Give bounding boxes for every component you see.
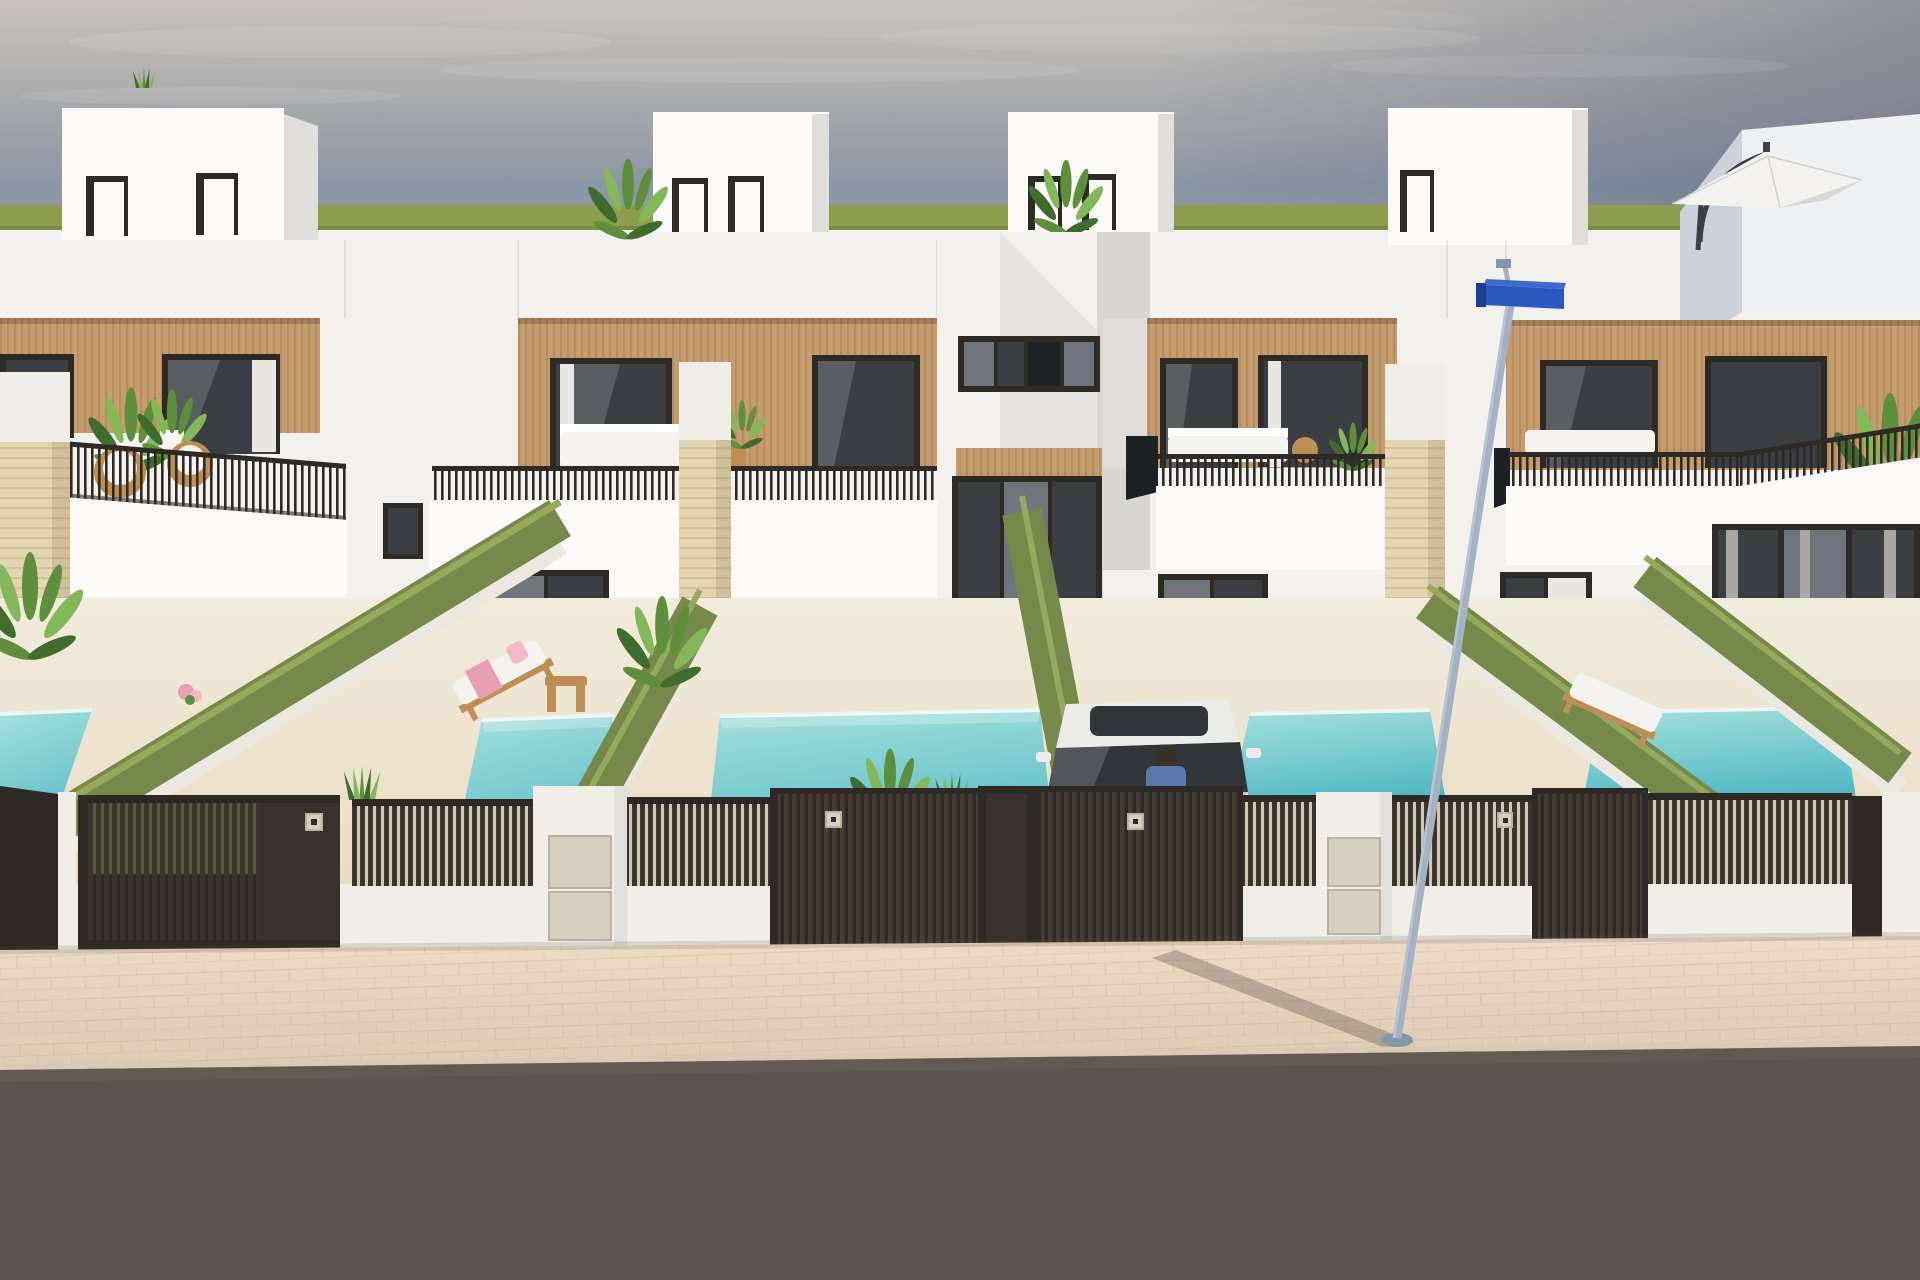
penthouse-4 [1388,108,1588,245]
fence-section [1392,795,1532,886]
meter-box [1328,890,1380,934]
meter-pillar [533,786,627,952]
clerestory-windows [958,336,1100,392]
side-window [383,503,423,559]
sunroof [1090,706,1208,736]
penthouse-3 [1008,112,1174,238]
road [0,1046,1920,1280]
meter-box [549,892,611,940]
fence-section [1648,793,1852,884]
driver-head [1155,747,1177,769]
lamp-head [1476,279,1566,309]
balcony-parapet [1156,486,1396,578]
meter-box [549,836,611,888]
railing [1158,454,1396,488]
balcony-parapet [1506,486,1742,578]
render-canvas [0,0,1920,1280]
road-surface [0,1046,1920,1280]
railing [1508,452,1742,486]
gate-c [1035,786,1243,952]
fence-post [1852,796,1882,950]
corner-pillar [1882,792,1920,948]
fence-section [352,799,540,886]
gate-b [770,786,1035,952]
gate-a [78,795,340,950]
meter-box [1328,838,1380,886]
gate-post [58,792,76,954]
terrace-sofa [1525,430,1655,454]
fence-section [627,797,770,886]
balcony-side-panel [1126,436,1158,500]
meter-pillar [1316,792,1392,952]
fence-section [1243,795,1316,886]
gate-d [1532,788,1648,952]
window [812,355,920,467]
